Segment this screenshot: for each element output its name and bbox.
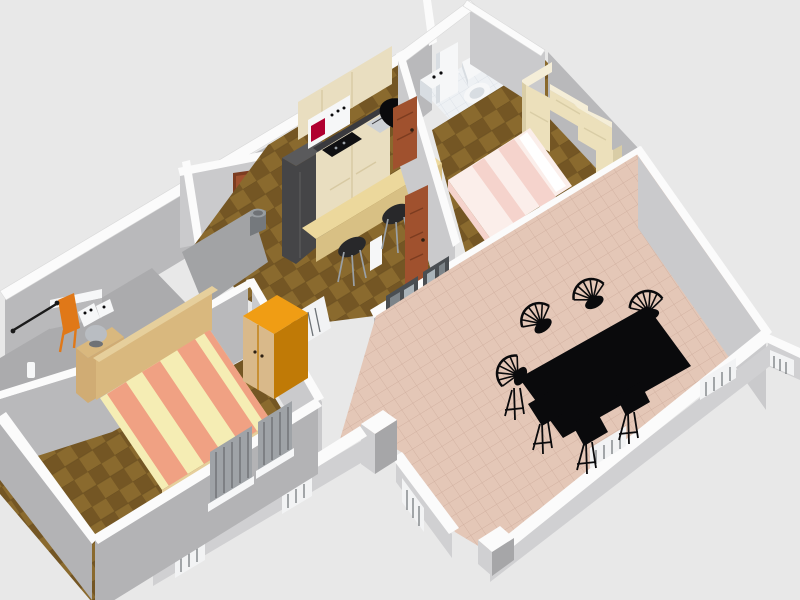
rod-end bbox=[11, 329, 16, 334]
bottle[interactable] bbox=[27, 362, 35, 378]
interior-door[interactable] bbox=[393, 96, 417, 170]
orange-wardrobe[interactable] bbox=[243, 295, 308, 399]
render-canvas bbox=[0, 0, 800, 600]
rod-end bbox=[55, 301, 60, 306]
floor-plan-3d-view bbox=[0, 0, 800, 600]
